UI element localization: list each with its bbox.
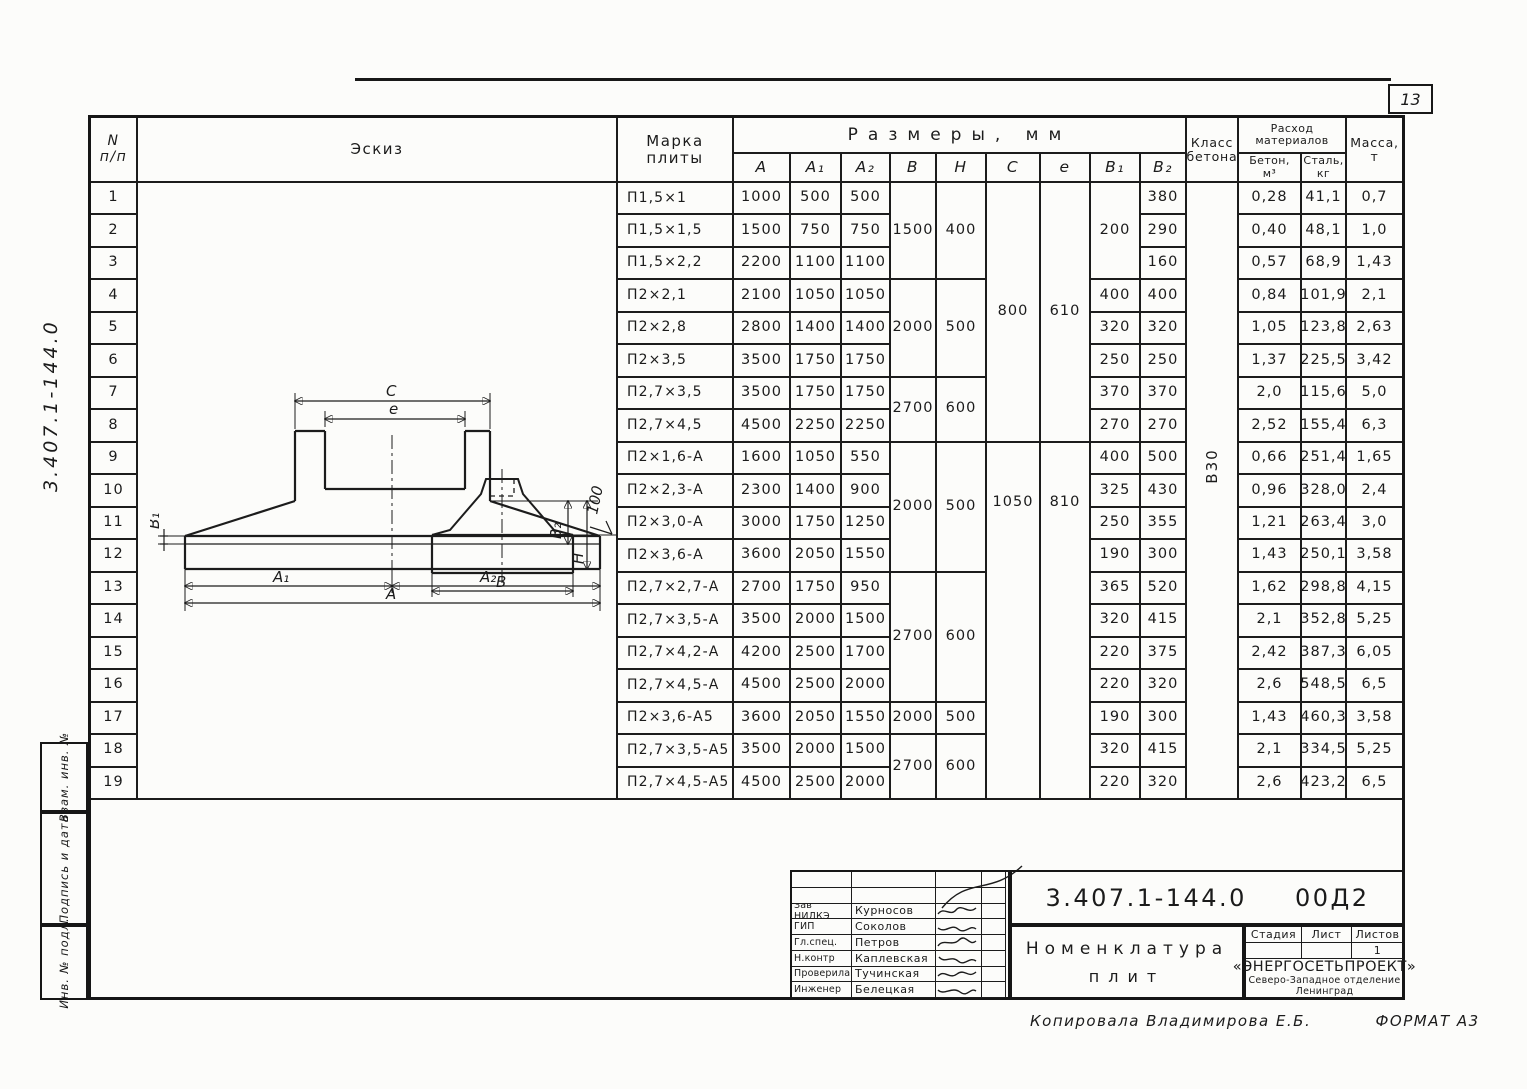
stamp-label-podpis: Подпись и дата — [57, 814, 71, 923]
signature-role: Н.контр — [792, 951, 852, 967]
col-header-size-5: Н — [937, 154, 987, 183]
dim-b2: 300 — [1141, 703, 1187, 735]
dim-b2: 370 — [1141, 378, 1187, 410]
dim-a: 3500 — [734, 735, 791, 767]
mass: 6,5 — [1347, 670, 1402, 702]
dim-b1: 220 — [1091, 670, 1141, 702]
signature-name: Курносов — [852, 904, 936, 920]
dim-b1: 400 — [1091, 280, 1141, 312]
dim-b1: 365 — [1091, 573, 1141, 605]
col-header-mark: Маркаплиты — [618, 118, 734, 183]
signature-role: ГИП — [792, 919, 852, 935]
material-concrete: 1,37 — [1239, 345, 1302, 377]
mass: 6,3 — [1347, 410, 1402, 442]
row-number: 5 — [91, 313, 138, 345]
material-concrete: 0,96 — [1239, 475, 1302, 507]
row-number: 1 — [91, 183, 138, 215]
sheets-value: 1 — [1352, 943, 1403, 959]
dim-b: 2000 — [891, 280, 937, 377]
stage-block: Стадия Лист Листов 1 «ЭНЕРГОСЕТЬПРОЕКТ» … — [1244, 925, 1405, 1000]
dim-a: 2200 — [734, 248, 791, 280]
dim-a2: 1100 — [842, 248, 891, 280]
material-steel: 48,1 — [1302, 215, 1347, 247]
mass: 5,25 — [1347, 735, 1402, 767]
signature-name: Тучинская — [852, 967, 936, 983]
mass: 6,05 — [1347, 638, 1402, 670]
dim-h: 600 — [937, 378, 987, 443]
plate-mark: П2×3,6-А — [618, 540, 734, 572]
dim-a2: 900 — [842, 475, 891, 507]
signature-date-cell — [982, 935, 1006, 951]
dim-a2: 2250 — [842, 410, 891, 442]
mass: 1,0 — [1347, 215, 1402, 247]
dim-b1: 200 — [1091, 183, 1141, 280]
mass: 3,42 — [1347, 345, 1402, 377]
dim-a: 2700 — [734, 573, 791, 605]
dim-e: 610 — [1041, 183, 1091, 443]
dim-b2: 320 — [1141, 670, 1187, 702]
material-steel: 460,3 — [1302, 703, 1347, 735]
material-concrete: 2,6 — [1239, 768, 1302, 800]
plate-mark: П2×3,0-А — [618, 508, 734, 540]
dim-a2: 1750 — [842, 345, 891, 377]
material-concrete: 0,28 — [1239, 183, 1302, 215]
dim-a2: 750 — [842, 215, 891, 247]
row-number: 9 — [91, 443, 138, 475]
dim-a1: 1750 — [791, 508, 842, 540]
row-number: 19 — [91, 768, 138, 800]
material-steel: 225,5 — [1302, 345, 1347, 377]
dim-a1: 2500 — [791, 670, 842, 702]
col-header-steel: Сталь,кг — [1302, 154, 1347, 183]
stage-grid: Стадия Лист Листов 1 — [1246, 927, 1403, 959]
stage-label: Стадия — [1246, 927, 1302, 943]
plate-mark: П2×2,8 — [618, 313, 734, 345]
dim-a: 4200 — [734, 638, 791, 670]
dim-a2: 1550 — [842, 703, 891, 735]
plate-mark: П2,7×4,2-А — [618, 638, 734, 670]
row-number: 11 — [91, 508, 138, 540]
sketch-label-a2: А₂ — [479, 568, 496, 586]
page-number: 13 — [1400, 90, 1420, 109]
dim-b2: 270 — [1141, 410, 1187, 442]
material-concrete: 1,43 — [1239, 703, 1302, 735]
dim-a1: 2250 — [791, 410, 842, 442]
dim-b1: 325 — [1091, 475, 1141, 507]
dim-a2: 550 — [842, 443, 891, 475]
mass: 0,7 — [1347, 183, 1402, 215]
sketch-label-a: А — [385, 585, 396, 603]
dim-b2: 320 — [1141, 768, 1187, 800]
material-concrete: 1,21 — [1239, 508, 1302, 540]
plate-mark: П2,7×3,5 — [618, 378, 734, 410]
row-number: 6 — [91, 345, 138, 377]
dim-a: 3600 — [734, 540, 791, 572]
mass: 3,58 — [1347, 703, 1402, 735]
dim-b2: 160 — [1141, 248, 1187, 280]
dim-b2: 375 — [1141, 638, 1187, 670]
dim-b2: 320 — [1141, 313, 1187, 345]
dim-h: 500 — [937, 703, 987, 735]
plate-mark: П2,7×3,5-А — [618, 605, 734, 637]
plate-mark: П2×2,1 — [618, 280, 734, 312]
stamp-label-inv: Инв. № подл. — [57, 917, 71, 1008]
page-number-box: 13 — [1388, 84, 1433, 114]
dim-a1: 1050 — [791, 280, 842, 312]
copied-line: Копировала Владимирова Е.Б. ФОРМАТ А3 — [1030, 1012, 1480, 1030]
plate-mark: П1,5×1 — [618, 183, 734, 215]
col-header-size-6: С — [987, 154, 1041, 183]
dim-b: 2000 — [891, 443, 937, 573]
material-steel: 334,5 — [1302, 735, 1347, 767]
sketch-label-b: В — [496, 573, 506, 591]
dim-b: 1500 — [891, 183, 937, 280]
dim-b1: 190 — [1091, 540, 1141, 572]
dim-b1: 320 — [1091, 735, 1141, 767]
col-header-sizes: Размеры, мм — [734, 118, 1187, 154]
signature-empty-cell — [852, 888, 936, 904]
material-steel: 328,0 — [1302, 475, 1347, 507]
plate-mark: П2×2,3-А — [618, 475, 734, 507]
dim-a1: 1400 — [791, 475, 842, 507]
dim-a: 4500 — [734, 670, 791, 702]
dim-a2: 1500 — [842, 605, 891, 637]
dim-b: 2700 — [891, 735, 937, 800]
dim-b2: 500 — [1141, 443, 1187, 475]
dim-h: 600 — [937, 573, 987, 703]
material-steel: 123,8 — [1302, 313, 1347, 345]
dim-b1: 190 — [1091, 703, 1141, 735]
material-steel: 41,1 — [1302, 183, 1347, 215]
col-header-mass: Масса,т — [1347, 118, 1402, 183]
material-steel: 263,4 — [1302, 508, 1347, 540]
dim-a1: 2000 — [791, 735, 842, 767]
plate-mark: П2,7×3,5-А5 — [618, 735, 734, 767]
material-concrete: 2,1 — [1239, 735, 1302, 767]
scanned-sheet: 13 3.407.1-144.0 Взам. инв. № Подпись и … — [0, 0, 1527, 1089]
dim-b2: 415 — [1141, 605, 1187, 637]
material-steel: 251,4 — [1302, 443, 1347, 475]
signature-scribble — [936, 935, 982, 951]
mass: 1,65 — [1347, 443, 1402, 475]
signature-role: Проверила — [792, 967, 852, 983]
signature-role: Гл.спец. — [792, 935, 852, 951]
material-concrete: 0,66 — [1239, 443, 1302, 475]
dim-a1: 2050 — [791, 703, 842, 735]
material-concrete: 2,52 — [1239, 410, 1302, 442]
row-number: 2 — [91, 215, 138, 247]
mass: 5,25 — [1347, 605, 1402, 637]
top-rule — [355, 78, 1391, 81]
sketch-label-e: е — [389, 400, 398, 418]
material-steel: 250,1 — [1302, 540, 1347, 572]
dim-a2: 950 — [842, 573, 891, 605]
dim-a1: 2500 — [791, 638, 842, 670]
dim-a2: 500 — [842, 183, 891, 215]
row-number: 14 — [91, 605, 138, 637]
dim-a2: 1550 — [842, 540, 891, 572]
doc-title-line2: плит — [1089, 967, 1165, 986]
material-steel: 155,4 — [1302, 410, 1347, 442]
plate-mark: П1,5×2,2 — [618, 248, 734, 280]
plate-mark: П2,7×4,5-А — [618, 670, 734, 702]
row-number: 13 — [91, 573, 138, 605]
plate-mark: П2×3,5 — [618, 345, 734, 377]
stamp-box-podpis: Подпись и дата — [40, 812, 88, 925]
material-steel: 423,2 — [1302, 768, 1347, 800]
material-steel: 68,9 — [1302, 248, 1347, 280]
dim-b2: 415 — [1141, 735, 1187, 767]
material-steel: 387,3 — [1302, 638, 1347, 670]
dim-a2: 1700 — [842, 638, 891, 670]
dim-a2: 1500 — [842, 735, 891, 767]
dim-h: 500 — [937, 443, 987, 573]
dim-a1: 1050 — [791, 443, 842, 475]
mass: 3,58 — [1347, 540, 1402, 572]
doc-code: 3.407.1-144.0 — [1045, 884, 1246, 912]
organization-block: «ЭНЕРГОСЕТЬПРОЕКТ» Северо-Западное отдел… — [1246, 959, 1403, 998]
signature-scribble — [936, 967, 982, 983]
dim-b2: 355 — [1141, 508, 1187, 540]
dim-a: 1000 — [734, 183, 791, 215]
dim-a1: 2500 — [791, 768, 842, 800]
dim-b2: 380 — [1141, 183, 1187, 215]
signature-role: Зав НИЛКЭ — [792, 904, 852, 920]
sheet-label: Лист — [1302, 927, 1352, 943]
organization-city: Ленинград — [1296, 987, 1354, 998]
row-number: 17 — [91, 703, 138, 735]
dim-b2: 520 — [1141, 573, 1187, 605]
concrete-class-cell: В30 — [1187, 183, 1239, 800]
material-concrete: 2,0 — [1239, 378, 1302, 410]
signature-name: Белецкая — [852, 982, 936, 998]
dim-a2: 1750 — [842, 378, 891, 410]
col-header-concrete-class: Классбетона — [1187, 118, 1239, 183]
dim-a: 2100 — [734, 280, 791, 312]
dim-a: 3500 — [734, 605, 791, 637]
sketch-label-slope: 100 — [583, 484, 607, 516]
plate-mark: П2,7×4,5 — [618, 410, 734, 442]
row-number: 18 — [91, 735, 138, 767]
col-header-size-2: А₁ — [791, 154, 842, 183]
doc-suffix: 00Д2 — [1295, 884, 1370, 912]
dim-b2: 250 — [1141, 345, 1187, 377]
dim-a1: 1750 — [791, 378, 842, 410]
col-header-size-7: е — [1041, 154, 1091, 183]
row-number: 3 — [91, 248, 138, 280]
row-number: 8 — [91, 410, 138, 442]
dim-a1: 1100 — [791, 248, 842, 280]
sheets-label: Листов — [1352, 927, 1403, 943]
organization-name: «ЭНЕРГОСЕТЬПРОЕКТ» — [1233, 959, 1416, 976]
mass: 2,63 — [1347, 313, 1402, 345]
material-steel: 101,9 — [1302, 280, 1347, 312]
dim-b1: 250 — [1091, 345, 1141, 377]
sketch-label-b1: В₁ — [150, 513, 163, 529]
sketch-label-c: С — [386, 383, 397, 400]
signature-date-cell — [982, 951, 1006, 967]
dim-b1: 220 — [1091, 768, 1141, 800]
dim-a1: 500 — [791, 183, 842, 215]
stamp-box-vzam: Взам. инв. № — [40, 742, 88, 812]
material-concrete: 2,6 — [1239, 670, 1302, 702]
col-header-size-1: А — [734, 154, 791, 183]
plate-mark: П2,7×4,5-А5 — [618, 768, 734, 800]
dim-c: 1050 — [987, 443, 1041, 800]
mass: 4,15 — [1347, 573, 1402, 605]
signature-name: Соколов — [852, 919, 936, 935]
sketch-label-h: Н — [569, 553, 587, 564]
material-concrete: 2,42 — [1239, 638, 1302, 670]
stamp-label-vzam: Взам. инв. № — [57, 732, 71, 822]
doc-number-cell: 3.407.1-144.0 00Д2 — [1010, 870, 1405, 925]
dim-a1: 1400 — [791, 313, 842, 345]
material-concrete: 0,57 — [1239, 248, 1302, 280]
signature-date-cell — [982, 919, 1006, 935]
row-number: 16 — [91, 670, 138, 702]
dim-b1: 370 — [1091, 378, 1141, 410]
material-steel: 548,5 — [1302, 670, 1347, 702]
dim-b2: 290 — [1141, 215, 1187, 247]
cup-recess — [325, 431, 465, 489]
material-concrete: 1,43 — [1239, 540, 1302, 572]
dim-b: 2700 — [891, 378, 937, 443]
doc-title-cell: Номенклатура плит — [1010, 925, 1244, 1000]
plate-mark: П2,7×2,7-А — [618, 573, 734, 605]
col-header-materials: Расходматериалов — [1239, 118, 1347, 154]
dim-b1: 250 — [1091, 508, 1141, 540]
row-number: 15 — [91, 638, 138, 670]
col-header-size-9: В₂ — [1141, 154, 1187, 183]
row-number: 10 — [91, 475, 138, 507]
dim-b1: 320 — [1091, 313, 1141, 345]
dim-a2: 2000 — [842, 768, 891, 800]
material-steel: 352,8 — [1302, 605, 1347, 637]
col-header-concrete: Бетон,м³ — [1239, 154, 1302, 183]
format-label: ФОРМАТ А3 — [1376, 1012, 1480, 1030]
material-concrete: 0,40 — [1239, 215, 1302, 247]
dim-a: 3600 — [734, 703, 791, 735]
dim-b1: 400 — [1091, 443, 1141, 475]
plate-mark: П1,5×1,5 — [618, 215, 734, 247]
row-number: 4 — [91, 280, 138, 312]
dim-a2: 1400 — [842, 313, 891, 345]
dim-h: 400 — [937, 183, 987, 280]
dim-a: 1600 — [734, 443, 791, 475]
stage-value — [1246, 943, 1302, 959]
dim-a: 4500 — [734, 768, 791, 800]
dim-a: 2800 — [734, 313, 791, 345]
dim-a: 3500 — [734, 345, 791, 377]
copied-by: Копировала Владимирова Е.Б. — [1030, 1012, 1311, 1030]
sketch-label-a1: А₁ — [272, 568, 289, 586]
signature-name: Каплевская — [852, 951, 936, 967]
dim-b: 2700 — [891, 573, 937, 703]
dim-b: 2000 — [891, 703, 937, 735]
mass: 3,0 — [1347, 508, 1402, 540]
dim-a: 2300 — [734, 475, 791, 507]
dim-b1: 270 — [1091, 410, 1141, 442]
material-concrete: 0,84 — [1239, 280, 1302, 312]
dim-a1: 1750 — [791, 345, 842, 377]
dim-a: 3500 — [734, 378, 791, 410]
dim-a1: 2050 — [791, 540, 842, 572]
col-header-size-3: А₂ — [842, 154, 891, 183]
material-concrete: 2,1 — [1239, 605, 1302, 637]
dim-b2: 430 — [1141, 475, 1187, 507]
dim-a2: 2000 — [842, 670, 891, 702]
doc-title-line1: Номенклатура — [1026, 939, 1228, 959]
dim-b2: 300 — [1141, 540, 1187, 572]
material-steel: 298,8 — [1302, 573, 1347, 605]
dim-a1: 1750 — [791, 573, 842, 605]
signature-empty-cell — [792, 888, 852, 904]
signature-empty-cell — [792, 872, 852, 888]
dim-c: 800 — [987, 183, 1041, 443]
dim-b1: 220 — [1091, 638, 1141, 670]
signature-empty-cell — [852, 872, 936, 888]
row-number: 12 — [91, 540, 138, 572]
signature-role: Инженер — [792, 982, 852, 998]
sketch-drawing: С е В₁ В₂ Н А₁ А₂ А В 100 — [150, 383, 630, 618]
dim-e: 810 — [1041, 443, 1091, 800]
row-number: 7 — [91, 378, 138, 410]
col-header-num: Nп/п — [91, 118, 138, 183]
col-header-sketch: Эскиз — [138, 118, 618, 183]
signature-date-cell — [982, 967, 1006, 983]
dim-a2: 1050 — [842, 280, 891, 312]
signature-scribble — [936, 919, 982, 935]
dim-a1: 2000 — [791, 605, 842, 637]
signature-name: Петров — [852, 935, 936, 951]
side-code-handwritten: 3.407.1-144.0 — [40, 319, 62, 492]
col-header-size-8: В₁ — [1091, 154, 1141, 183]
dim-a: 3000 — [734, 508, 791, 540]
signature-scribble — [936, 982, 982, 998]
col-header-size-4: В — [891, 154, 937, 183]
mass: 2,4 — [1347, 475, 1402, 507]
plate-mark: П2×1,6-А — [618, 443, 734, 475]
dim-h: 600 — [937, 735, 987, 800]
dim-b1: 320 — [1091, 605, 1141, 637]
signature-date-cell — [982, 982, 1006, 998]
dim-a: 4500 — [734, 410, 791, 442]
material-concrete: 1,62 — [1239, 573, 1302, 605]
dim-a1: 750 — [791, 215, 842, 247]
material-concrete: 1,05 — [1239, 313, 1302, 345]
dim-b2: 400 — [1141, 280, 1187, 312]
mass: 6,5 — [1347, 768, 1402, 800]
stamp-box-inv: Инв. № подл. — [40, 925, 88, 1000]
mass: 5,0 — [1347, 378, 1402, 410]
dim-h: 500 — [937, 280, 987, 377]
mass: 2,1 — [1347, 280, 1402, 312]
dim-a: 1500 — [734, 215, 791, 247]
mass: 1,43 — [1347, 248, 1402, 280]
material-steel: 115,6 — [1302, 378, 1347, 410]
concrete-class-value: В30 — [1204, 448, 1221, 483]
dim-a2: 1250 — [842, 508, 891, 540]
sheet-value — [1302, 943, 1352, 959]
plate-mark: П2×3,6-А5 — [618, 703, 734, 735]
signature-scribble — [936, 951, 982, 967]
